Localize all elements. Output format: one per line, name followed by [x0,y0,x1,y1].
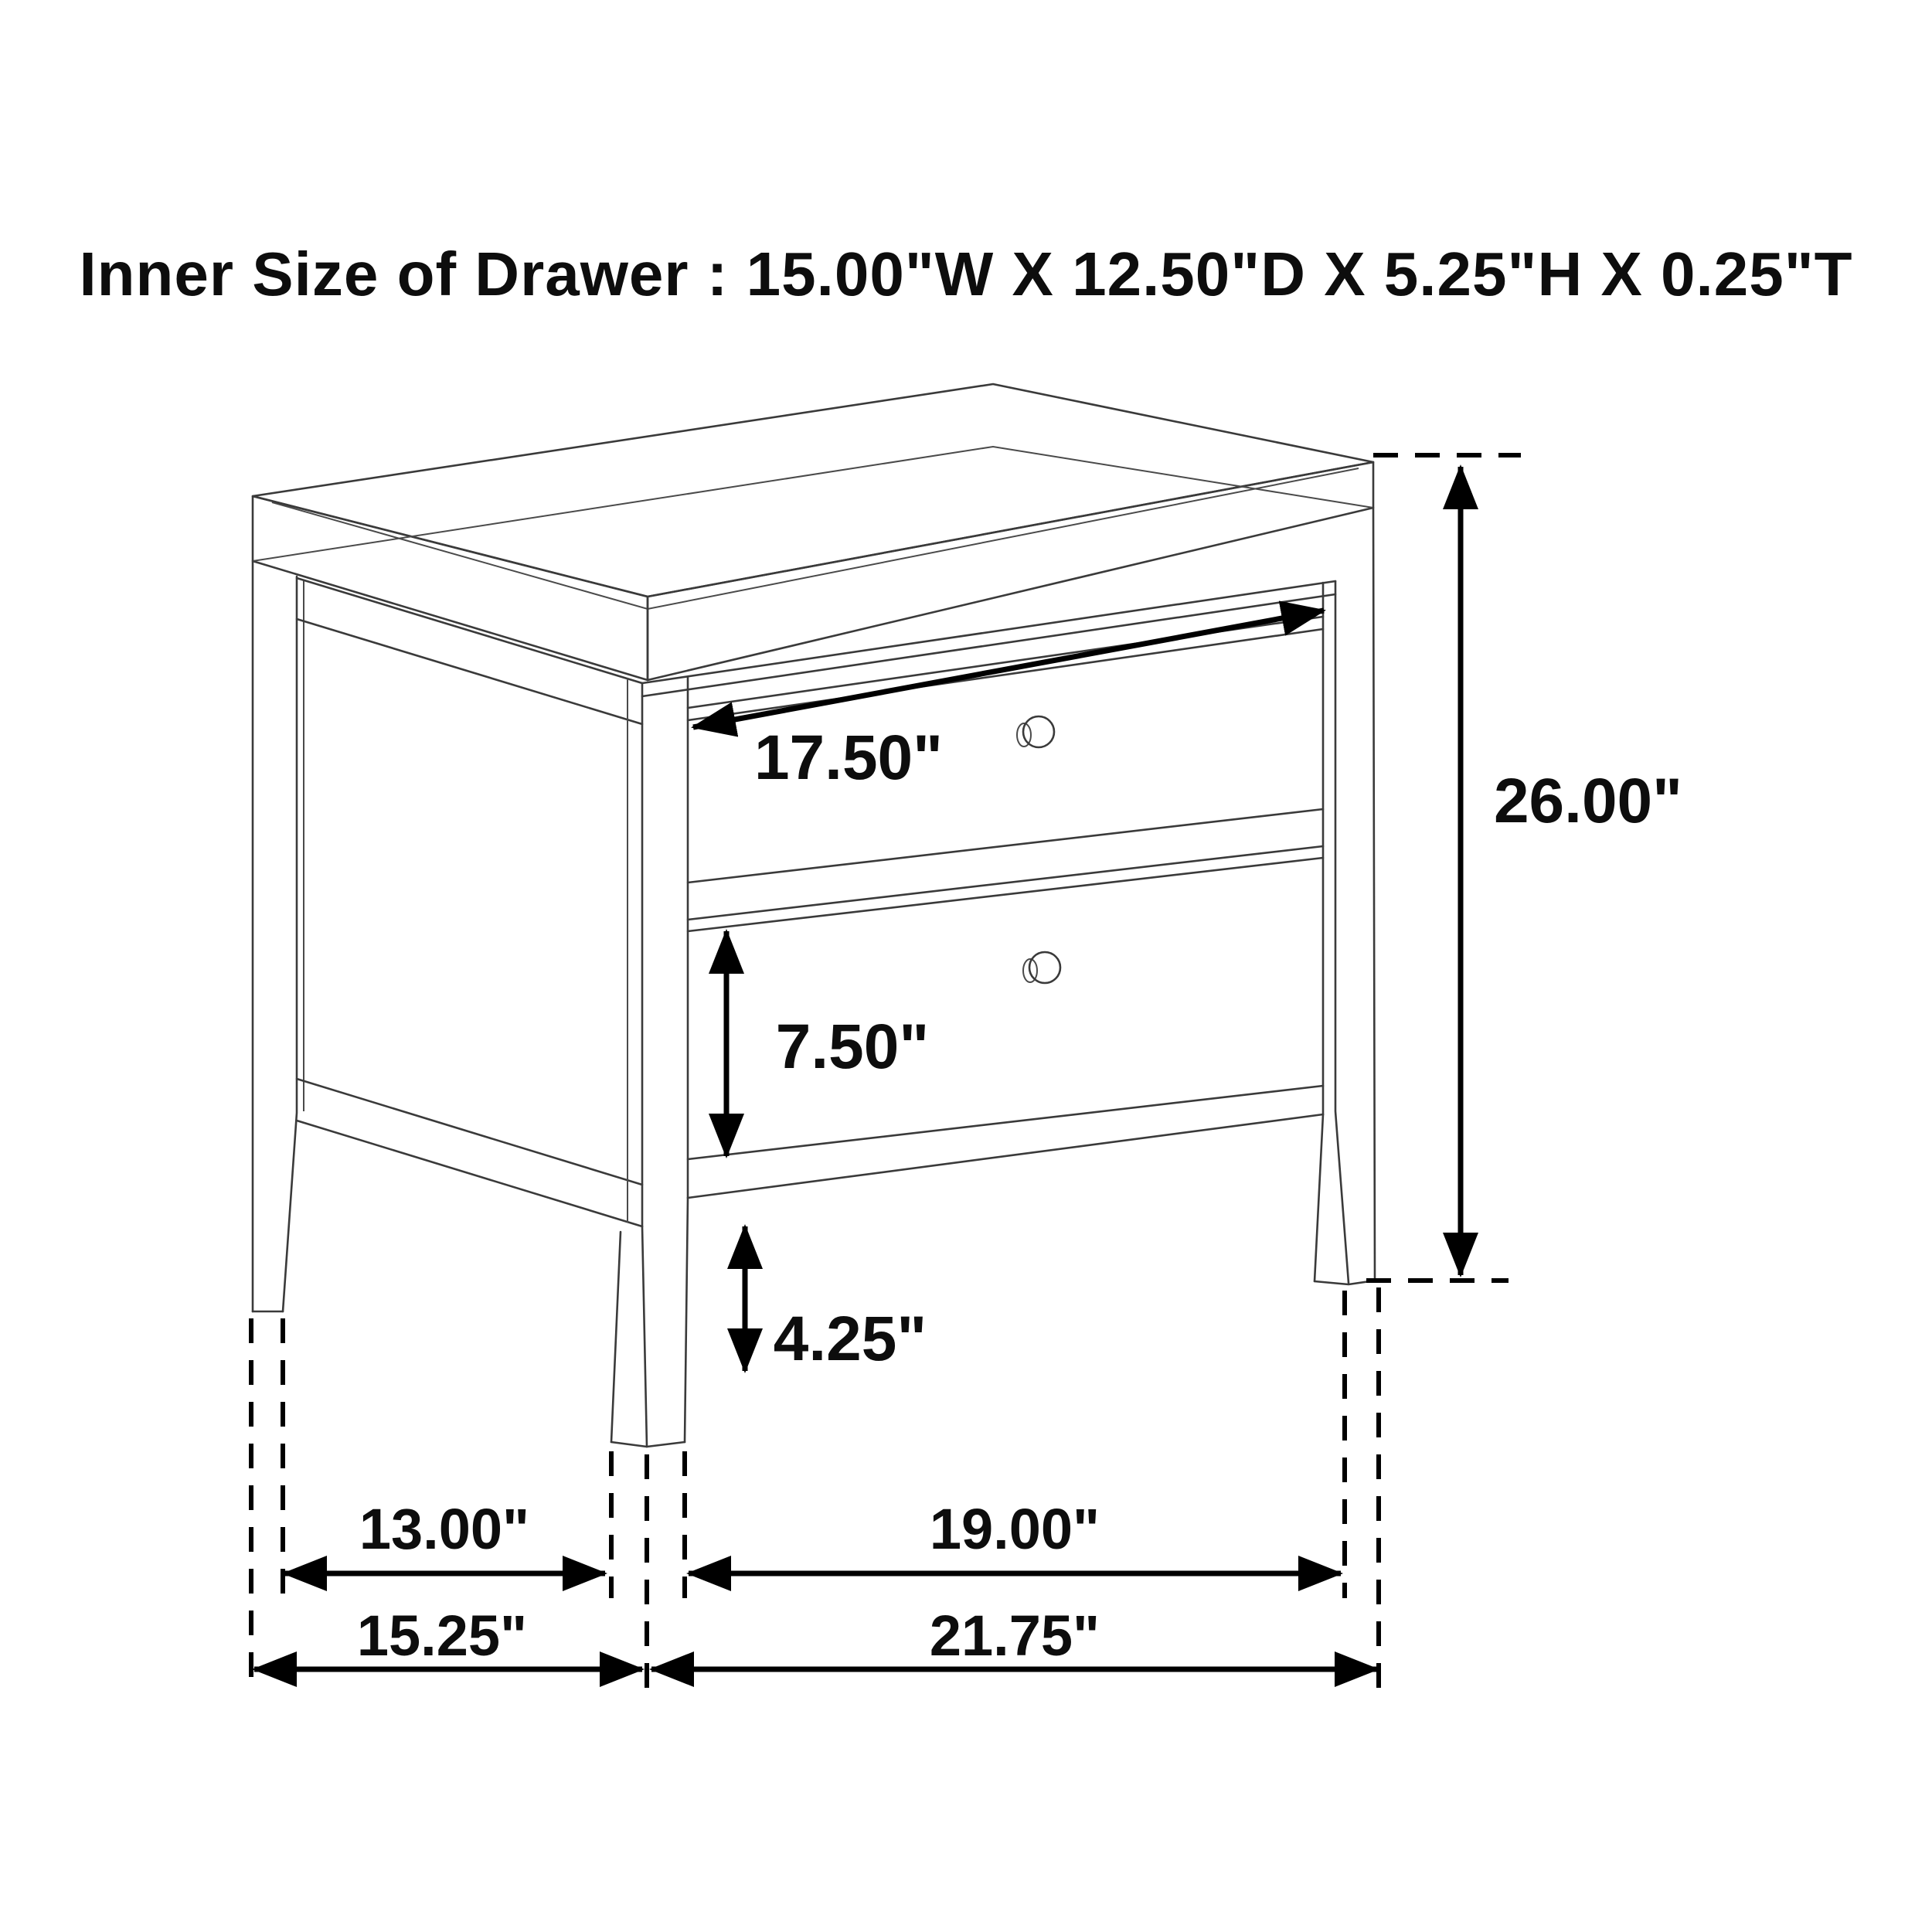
front-face-reveal-line [642,594,1335,696]
dimension-diagram: Inner Size of Drawer : 15.00"W X 12.50"D… [0,0,1932,1932]
side-top-rail-upper [297,578,642,683]
arrow-drawer-front-width [693,611,1324,727]
front-face-top-edge [642,581,1335,683]
nightstand-drawing [253,384,1375,1447]
label-floor-clearance: 4.25" [774,1304,927,1374]
tabletop-inset-edge [272,468,1359,609]
front-left-leg-back-edge [611,1232,621,1442]
label-side-overall-depth: 15.25" [357,1604,527,1668]
side-bottom-rail-lower [297,1121,642,1226]
front-left-leg-bottom [611,1442,685,1447]
tabletop-front-right-edge [648,462,1373,680]
front-right-leg-inner-taper [1315,1114,1323,1281]
label-front-overall-width: 21.75" [930,1604,1100,1668]
front-apron-bottom-edge [688,1114,1323,1198]
drawer-knobs [1017,716,1060,983]
side-top-rail-lower [297,619,642,724]
tabletop-front-left-edge [253,496,648,680]
label-front-inner-width: 19.00" [930,1497,1100,1561]
top-drawer-knob-icon [1023,716,1054,747]
side-bottom-rail-upper [297,1079,642,1185]
front-right-leg-bottom [1315,1281,1375,1284]
divider-rail-bottom [688,846,1323,920]
front-right-corner-edge [1335,581,1349,1283]
front-left-leg-front-edge [685,1198,688,1442]
front-right-leg [1315,508,1375,1284]
label-bottom-drawer-height: 7.50" [776,1012,929,1082]
dimension-labels: 17.50" 26.00" 7.50" 4.25" 13.00" 19.00" … [357,723,1682,1668]
bottom-drawer-face-top [688,858,1323,931]
front-left-leg [611,677,688,1447]
back-left-leg-inner-edge [283,577,297,1311]
tabletop [253,384,1373,680]
screenshot-root: Inner Size of Drawer : 15.00"W X 12.50"D… [0,0,1932,1932]
bottom-drawer-knob-icon [1029,952,1060,983]
back-left-leg [253,561,304,1311]
label-drawer-front-width: 17.50" [754,723,943,793]
bottom-drawer-face-bottom [688,1086,1323,1159]
front-right-leg-outer-edge [1373,508,1375,1281]
left-side-panel [297,578,642,1226]
tabletop-top-face [253,384,1373,597]
page-title: Inner Size of Drawer : 15.00"W X 12.50"D… [79,240,1852,308]
front-left-leg-corner [642,1226,647,1447]
top-drawer-face-bottom [688,809,1323,883]
label-overall-height: 26.00" [1494,766,1682,836]
label-side-inner-depth: 13.00" [359,1497,529,1561]
